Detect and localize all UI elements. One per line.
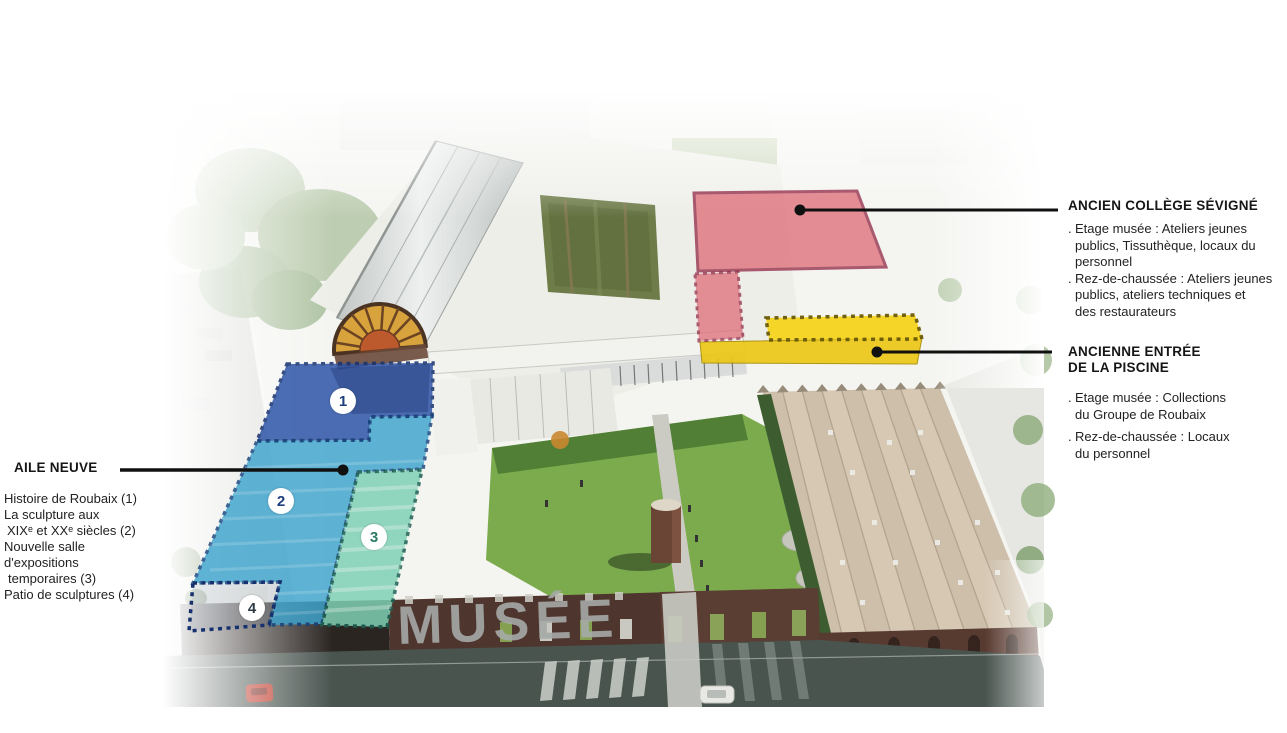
ancienne-entree-title: ANCIENNE ENTRÉE DE LA PISCINE [1068,344,1201,375]
fade-right [930,88,1044,388]
bullet: . [1068,390,1075,407]
zone-marker-2-label: 2 [277,493,285,510]
bullet: . [1068,271,1075,288]
legend-line: temporaires (3) [4,571,174,587]
aile-neuve-title: AILE NEUVE [14,460,98,475]
zone-red-connector [695,272,743,341]
zone-marker-1: 1 [330,388,356,414]
ancien-college-title: ANCIEN COLLÈGE SÉVIGNÉ [1068,198,1258,213]
legend-line: personnel [1068,254,1287,271]
legend-line: .Rez-de-chaussée : Locaux [1068,429,1287,446]
zone-marker-1-label: 1 [339,393,347,410]
zone-marker-3-label: 3 [370,529,378,546]
legend-line: Patio de sculptures (4) [4,587,174,603]
legend-line: publics, ateliers techniques et [1068,287,1287,304]
ancienne-entree-list: .Etage musée : Collections du Groupe de … [1068,390,1287,462]
zone-ancienne-entree [766,315,922,340]
legend-line: Nouvelle salle [4,539,174,555]
bullet: . [1068,429,1075,446]
legend-line: du Groupe de Roubaix [1068,407,1287,424]
zone-ancien-college [694,191,886,271]
legend-line: d'expositions [4,555,174,571]
entrance-walkway [662,592,702,707]
ancien-college-list: .Etage musée : Ateliers jeunes publics, … [1068,221,1287,321]
legend-line: XIXᵉ et XXᵉ siècles (2) [4,523,174,539]
legend-line: .Rez-de-chaussée : Ateliers jeunes [1068,271,1287,288]
fade-bottom-right [985,560,1044,707]
aile-neuve-list: Histoire de Roubaix (1) La sculpture aux… [4,491,174,603]
white-car [700,686,734,703]
annotated-site-plan: MUSÉE [0,0,1287,733]
title-line: ANCIENNE ENTRÉE [1068,344,1201,360]
zone-marker-4: 4 [239,595,265,621]
legend-line: .Etage musée : Collections [1068,390,1287,407]
zone4-patio [189,582,280,631]
zone-marker-4-label: 4 [248,600,256,617]
legend-line: des restaurateurs [1068,304,1287,321]
bullet: . [1068,221,1075,238]
title-line: DE LA PISCINE [1068,360,1201,376]
zone-marker-3: 3 [361,524,387,550]
zone-marker-2: 2 [268,488,294,514]
legend-line: .Etage musée : Ateliers jeunes [1068,221,1287,238]
legend-line: du personnel [1068,446,1287,463]
legend-line: Histoire de Roubaix (1) [4,491,174,507]
legend-line: publics, Tissuthèque, locaux du [1068,238,1287,255]
legend-line: La sculpture aux [4,507,174,523]
